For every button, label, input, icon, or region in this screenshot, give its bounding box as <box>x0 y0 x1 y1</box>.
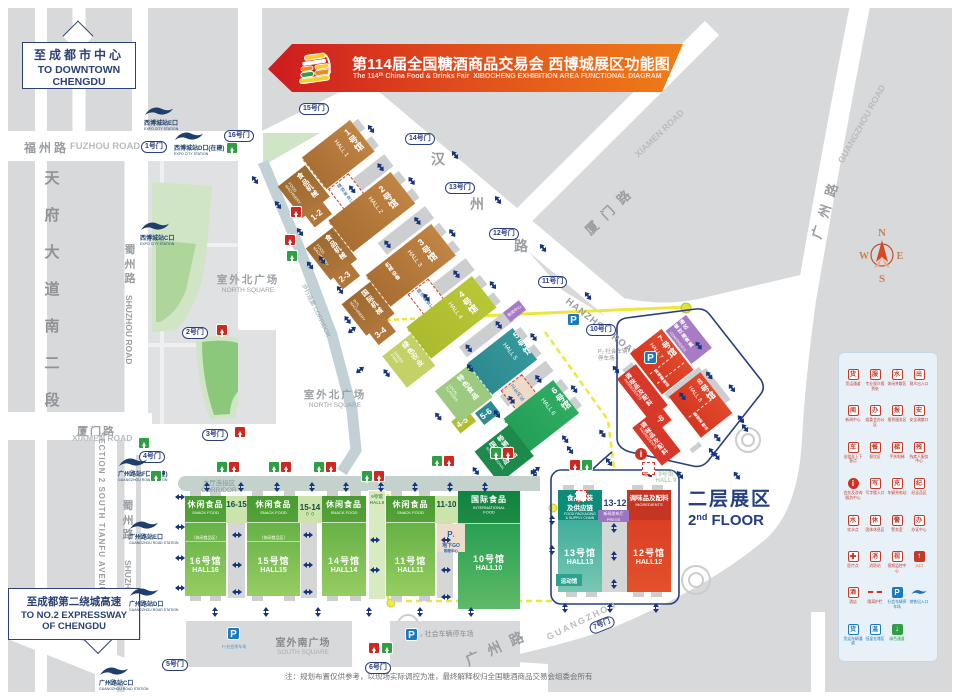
svg-text:E: E <box>897 251 904 262</box>
svg-text:W: W <box>859 251 869 262</box>
svg-text:N: N <box>878 227 886 239</box>
svg-text:S: S <box>879 273 885 285</box>
